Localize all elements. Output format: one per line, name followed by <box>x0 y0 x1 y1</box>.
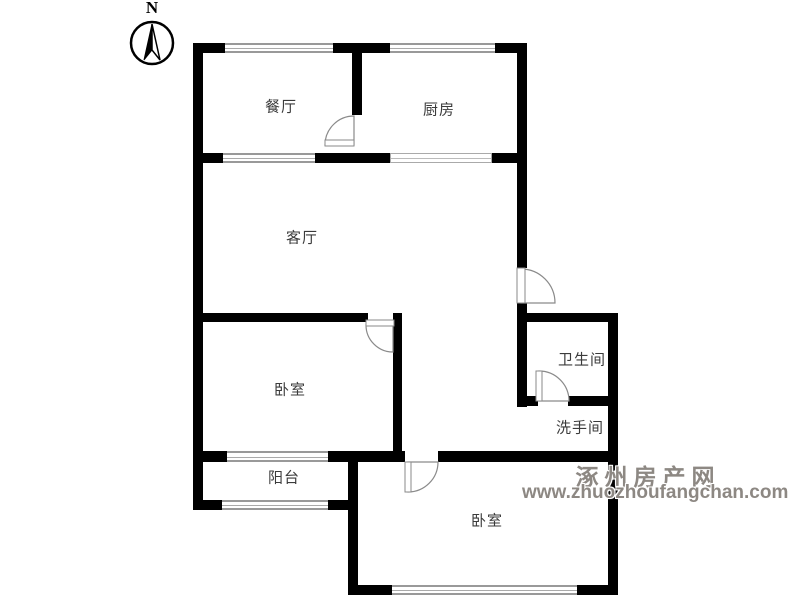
room-label-balcony: 阳台 <box>268 467 300 488</box>
room-label-bedroom-left: 卧室 <box>274 379 306 400</box>
watermark-site-url: www.zhuozhoufangchan.com <box>522 482 774 504</box>
doors-and-compass-layer <box>0 0 800 600</box>
room-label-dining: 餐厅 <box>265 96 297 117</box>
door-leaf-kitchen <box>325 140 354 146</box>
door-arc-entrance <box>521 269 555 303</box>
door-leaf-bedroom-bottom <box>405 462 411 492</box>
room-label-bathroom: 卫生间 <box>558 349 606 370</box>
compass-needle-light <box>152 24 160 60</box>
room-label-washroom: 洗手间 <box>556 417 604 438</box>
door-arc-bedroom-bottom <box>408 462 438 492</box>
door-arc-bathroom <box>539 371 569 401</box>
compass-needle-dark <box>144 24 152 60</box>
door-leaf-bedroom-left <box>366 320 394 326</box>
door-leaf-bathroom <box>536 371 542 401</box>
room-label-kitchen: 厨房 <box>423 99 455 120</box>
room-label-bedroom-bottom: 卧室 <box>471 510 503 531</box>
room-label-living: 客厅 <box>286 227 318 248</box>
door-arc-bedroom-left <box>366 325 393 352</box>
compass-north-label: N <box>146 0 158 18</box>
floor-plan: N 餐厅 厨房 客厅 卫生间 洗手间 卧室 阳台 卧室 涿州房产网 www.zh… <box>0 0 800 600</box>
door-leaf-entrance <box>517 268 525 303</box>
